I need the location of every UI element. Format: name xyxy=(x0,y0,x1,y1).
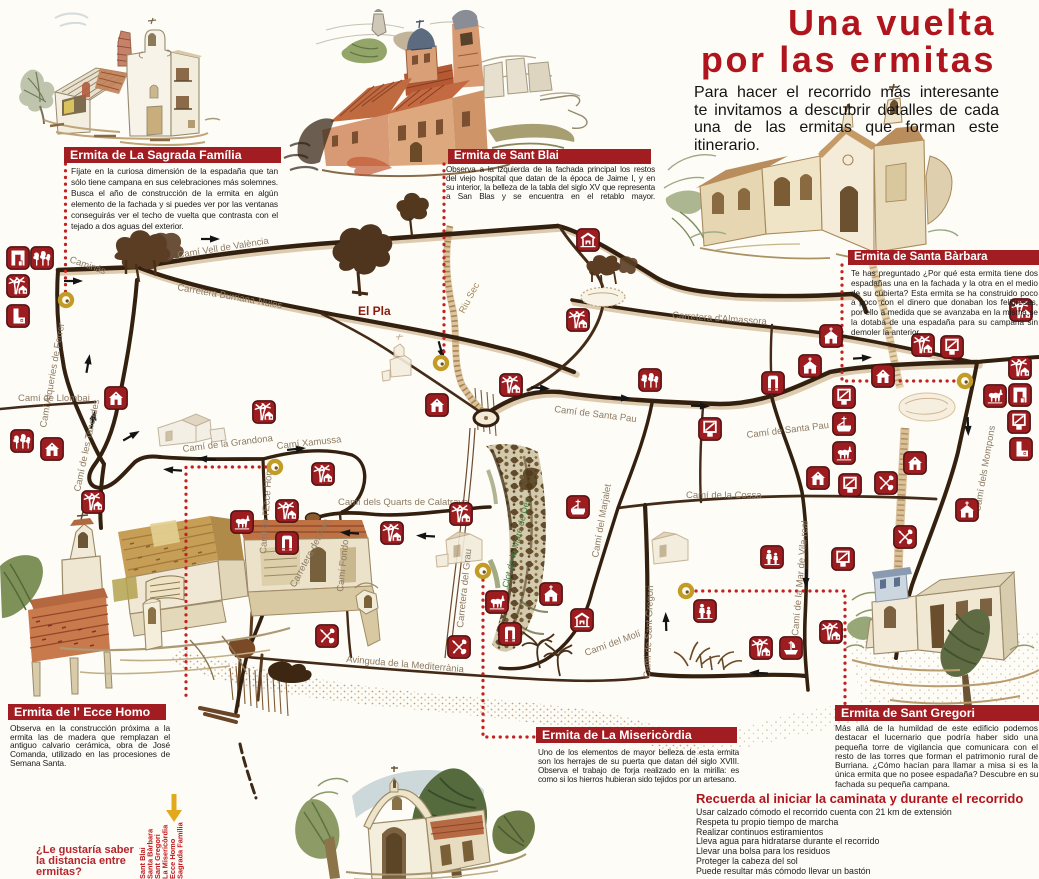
svg-text:Carretera Burriana-Nules: Carretera Burriana-Nules xyxy=(176,282,283,311)
svg-text:Camí de Santa Pau: Camí de Santa Pau xyxy=(554,404,638,425)
svg-text:Camí de Santa Pau: Camí de Santa Pau xyxy=(746,420,830,441)
svg-text:Camí del Marjalet: Camí del Marjalet xyxy=(590,483,614,559)
svg-text:Camí Alqueries de Ferrer: Camí Alqueries de Ferrer xyxy=(38,322,67,428)
svg-text:Camí de la Cossa: Camí de la Cossa xyxy=(686,490,762,501)
svg-text:El Pla: El Pla xyxy=(358,304,391,318)
svg-text:Riu Sec: Riu Sec xyxy=(457,281,482,316)
svg-text:Camí del Molí: Camí del Molí xyxy=(583,628,642,659)
svg-text:Camí Xamussa: Camí Xamussa xyxy=(276,434,342,452)
svg-text:Camí de Llombai: Camí de Llombai xyxy=(18,393,90,404)
svg-text:Avinguda de la Mediterrània: Avinguda de la Mediterrània xyxy=(346,654,465,675)
svg-text:Sagrada Família: Sagrada Família xyxy=(176,821,185,879)
svg-text:Camí de Sant Gregori: Camí de Sant Gregori xyxy=(642,585,656,678)
